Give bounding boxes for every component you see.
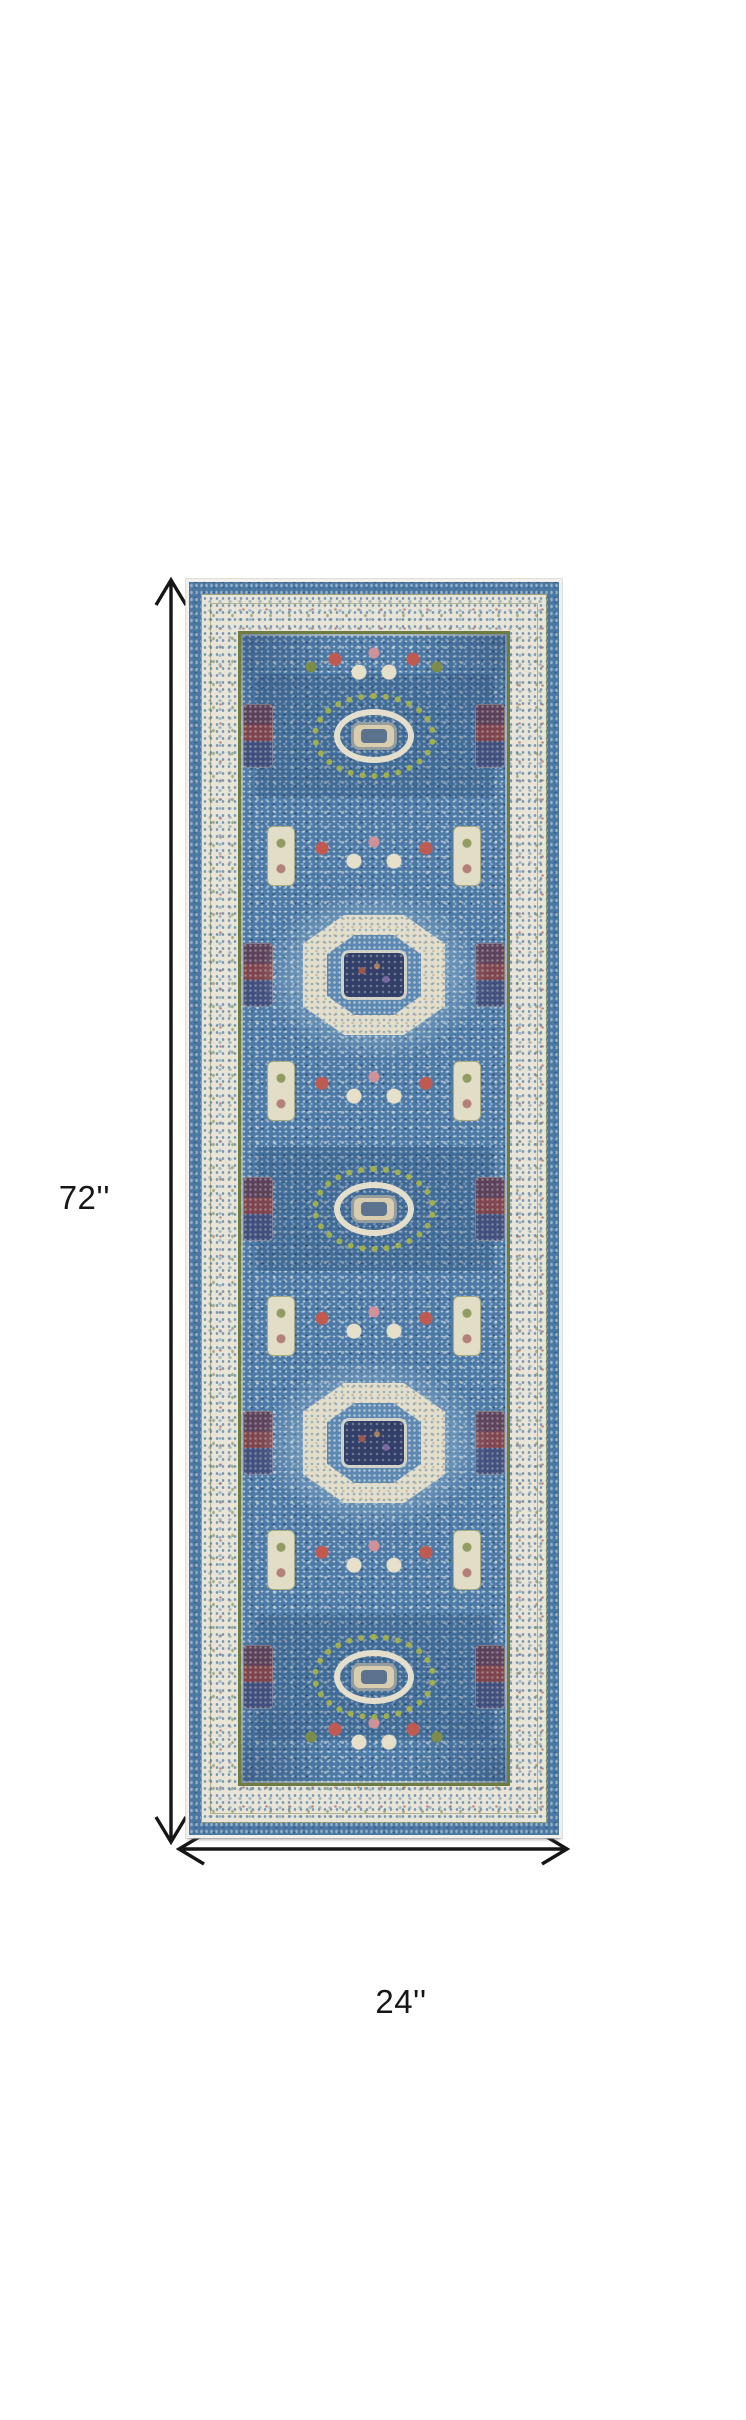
rug-cream-panel xyxy=(267,1061,295,1121)
medallion-core xyxy=(344,1421,404,1465)
rug-flower-cluster xyxy=(299,635,449,699)
width-dimension-label: 24'' xyxy=(336,1984,466,2020)
medallion-core xyxy=(351,1195,397,1223)
rug-cream-panel xyxy=(267,1296,295,1356)
rug-field xyxy=(238,631,510,1786)
rug-cream-panel xyxy=(267,826,295,886)
rug-cream-panel xyxy=(453,1061,481,1121)
rug-flower-cluster xyxy=(274,1294,474,1358)
rug-flower-cluster xyxy=(274,824,474,888)
rug-flower-cluster xyxy=(274,1528,474,1592)
rug-medallion-oval-3 xyxy=(312,1634,436,1720)
rug-cream-panel xyxy=(453,1296,481,1356)
rug-side-ornament xyxy=(475,1645,505,1709)
rug-side-ornament xyxy=(475,704,505,768)
rug-side-ornament xyxy=(243,1177,273,1241)
rug-cream-panel xyxy=(267,1530,295,1590)
rug-flower-cluster xyxy=(274,1059,474,1123)
rug-side-ornament xyxy=(243,1645,273,1709)
rug-product-image xyxy=(186,579,562,1838)
height-dimension-arrow xyxy=(152,574,190,1848)
medallion-core xyxy=(351,1663,397,1691)
rug-side-ornament xyxy=(243,704,273,768)
rug-medallion-octagon-1 xyxy=(303,915,445,1035)
medallion-core xyxy=(344,953,404,997)
height-dimension-label: 72'' xyxy=(28,1180,110,1216)
rug-side-ornament xyxy=(475,1177,505,1241)
rug-medallion-octagon-2 xyxy=(303,1383,445,1503)
medallion-core xyxy=(351,722,397,750)
rug-medallion-oval-2 xyxy=(312,1166,436,1252)
rug-medallion-oval-1 xyxy=(312,693,436,779)
rug-cream-panel xyxy=(453,826,481,886)
rug-cream-panel xyxy=(453,1530,481,1590)
